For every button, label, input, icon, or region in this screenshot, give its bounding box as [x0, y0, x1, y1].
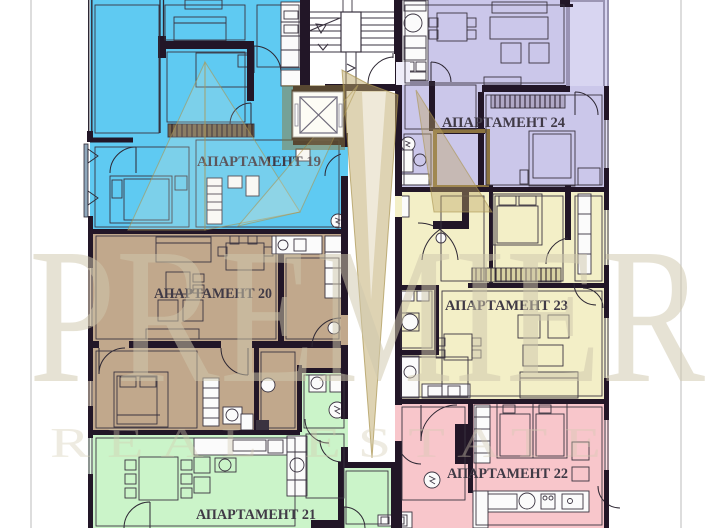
- svg-text:АПАРТАМЕНТ 22: АПАРТАМЕНТ 22: [447, 466, 568, 482]
- svg-text:REAL ESTATE: REAL ESTATE: [50, 421, 618, 467]
- svg-text:АПАРТАМЕНТ 24: АПАРТАМЕНТ 24: [442, 115, 565, 131]
- svg-text:АПАРТАМЕНТ 21: АПАРТАМЕНТ 21: [196, 507, 316, 523]
- svg-text:PREMIER: PREMIER: [29, 208, 705, 423]
